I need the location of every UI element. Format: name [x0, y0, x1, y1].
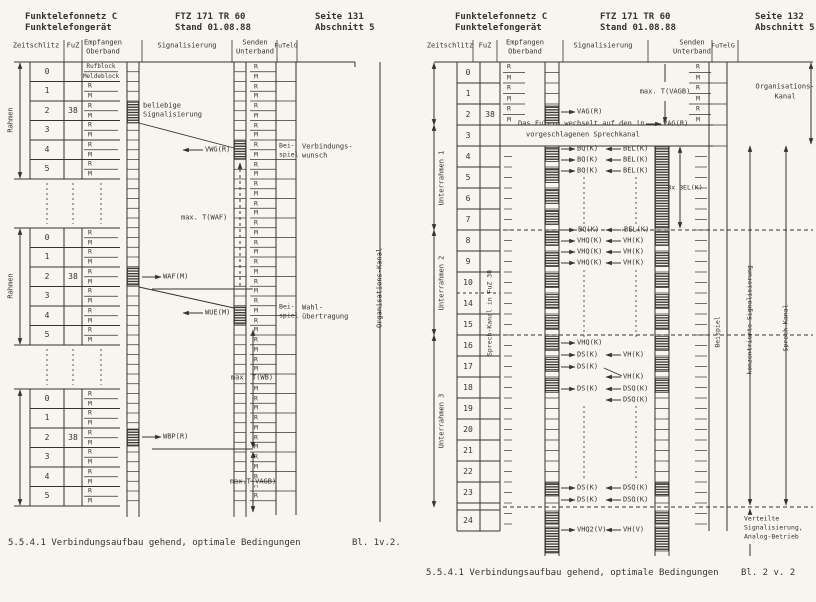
cell-rufblock-r: R [88, 288, 92, 295]
senden-cell-letter: M [254, 405, 258, 412]
timeslot-number: 4 [45, 146, 50, 154]
speech-channel-fuz-label: Sprech-Kanal in FuZ 38 [487, 269, 494, 357]
signal-label-in: VH(K) [623, 351, 644, 358]
cell-meldeblock-m: M [88, 151, 92, 158]
signal-label-in: VH(K) [623, 373, 644, 380]
column-header-senden: Unterband [673, 48, 711, 55]
timeslot-number: 5 [45, 331, 50, 339]
signal-label-out: DS(K) [577, 363, 598, 370]
cell-rufblock-r: R [88, 410, 92, 417]
cell-meldeblock: Meldeblock [83, 73, 119, 79]
timeslot-number: 0 [45, 234, 50, 242]
timing-diagram-blatt1: 0RufblockMeldeblock1RM2RM3RM4RM5RM38Rahm… [0, 0, 408, 602]
signal-label-in: BEL(K) [623, 226, 650, 233]
signal-label-in: BEL(K) [623, 167, 648, 174]
annotation-verteilte: Analog-Betrieb [744, 534, 799, 541]
signal-label-out: DS(K) [577, 385, 598, 392]
cell-rufblock-r: R [88, 141, 92, 148]
signal-label-out: VHQ2(V) [577, 526, 607, 533]
timeslot-number: 16 [463, 341, 473, 349]
note-channel-switch-signal: VAG(R) [663, 120, 688, 127]
senden-cell-letter: R [254, 103, 258, 110]
signal-label-in: VH(K) [623, 259, 644, 266]
underframe-label-1: Unterrahmen 1 [438, 151, 445, 206]
timeslot-number: 9 [466, 257, 471, 265]
timing-diagram-blatt2: 012345678910141516171819202122232438RRMM… [408, 0, 816, 602]
signal-label-out: VHQ(K) [577, 259, 602, 266]
timer-label-tvagb: max.T(VAGB) [229, 478, 277, 485]
column-header-empfangen: Empfangen [506, 39, 544, 46]
timeslot-number: 6 [466, 194, 471, 202]
signal-label-in: DSQ(K) [623, 496, 648, 503]
timeslot-number: 18 [463, 383, 473, 391]
column-header-fuz: FuZ [67, 42, 80, 49]
timeslot-number: 0 [466, 68, 471, 76]
empfangen-cell-letter: R [507, 64, 511, 71]
signal-label-in: BEL(K) [623, 145, 648, 152]
timeslot-number: 2 [45, 434, 50, 442]
senden-cell-letter: M [254, 190, 258, 197]
senden-cell-letter: R [254, 200, 258, 207]
senden-cell-letter: M [254, 93, 258, 100]
signal-label-out: BQ(K) [577, 167, 598, 174]
senden-cell-letter: R [696, 85, 700, 92]
column-header-empfangen: Oberband [86, 48, 120, 55]
timeslot-number: 3 [45, 292, 50, 300]
column-header-signalisierung: Signalisierung [573, 42, 632, 49]
column-header-empfangen: Empfangen [84, 39, 122, 46]
signal-label-out: BQ(K) [577, 145, 598, 152]
signal-label-out: VHQ(K) [577, 248, 602, 255]
cell-meldeblock-m: M [88, 420, 92, 427]
figure-caption: 5.5.4.1 Verbindungsaufbau gehend, optima… [8, 538, 301, 548]
senden-cell-letter: M [254, 424, 258, 431]
fuz-channel-number: 38 [68, 107, 78, 115]
empfangen-cell-letter: M [507, 74, 511, 81]
annotation-verteilte: Signalisierung, [744, 525, 803, 532]
senden-cell-letter: R [254, 142, 258, 149]
annotation-konzentrierte-signalisierung: konzentrierte Signalisierung [747, 264, 754, 376]
cell-meldeblock-m: M [88, 439, 92, 446]
timeslot-number: 0 [45, 68, 50, 76]
cell-rufblock-r: R [88, 307, 92, 314]
cell-rufblock-r: R [88, 429, 92, 436]
annotation-verteilte: Verteilte [744, 516, 779, 523]
senden-cell-letter: M [254, 73, 258, 80]
column-header-zeitschlitz: Zeitschlitz [427, 42, 473, 49]
page-seite-132: Funktelefonnetz CFunktelefongerät FTZ 17… [408, 0, 816, 602]
note-channel-switch: vorgeschlagenen Sprechkanal [526, 131, 640, 138]
senden-cell-letter: R [254, 259, 258, 266]
annotation-beliebige: Signalisierung [143, 111, 202, 118]
timeslot-number: 1 [45, 253, 50, 261]
cell-rufblock-r: R [88, 468, 92, 475]
annotation-wahl: Wahl- [302, 304, 323, 311]
timeslot-number: 5 [466, 173, 471, 181]
timeslot-number: 4 [45, 312, 50, 320]
annotation-verbind: Verbindungs- [302, 143, 353, 150]
senden-cell-letter: M [254, 249, 258, 256]
channel-label-sprechkanal: Sprech-Kanal [783, 304, 790, 353]
empfangen-cell-letter: R [507, 106, 511, 113]
cell-meldeblock-m: M [88, 317, 92, 324]
timeslot-number: 0 [45, 395, 50, 403]
annotation-8x-bel: 8x BEL(K) [666, 185, 703, 192]
cell-meldeblock-m: M [88, 239, 92, 246]
senden-cell-letter: M [254, 112, 258, 119]
frame-label-rahmen: Rahmen [7, 107, 14, 132]
fuz-channel-number: 38 [485, 110, 495, 118]
senden-cell-letter: M [254, 288, 258, 295]
senden-cell-letter: M [254, 210, 258, 217]
senden-cell-letter: R [254, 278, 258, 285]
timeslot-number: 8 [466, 236, 471, 244]
sheet-number: Bl. 1v.2. [352, 538, 401, 548]
timeslot-number: 7 [466, 215, 471, 223]
cell-meldeblock-m: M [88, 112, 92, 119]
senden-cell-letter: R [254, 181, 258, 188]
signal-label-in: DSQ(K) [623, 484, 648, 491]
cell-meldeblock-m: M [88, 459, 92, 466]
timeslot-number: 20 [463, 425, 473, 433]
signal-label-out: BQ(K) [577, 226, 600, 233]
timeslot-number: 19 [463, 404, 473, 412]
signal-label-in: VH(K) [623, 248, 644, 255]
column-header-senden: Senden [242, 39, 267, 46]
cell-rufblock-r: R [88, 83, 92, 90]
timer-label-twb: max. T(WB) [230, 374, 274, 381]
cell-rufblock-r: R [88, 161, 92, 168]
timeslot-number: 17 [463, 362, 473, 370]
senden-cell-letter: M [254, 307, 258, 314]
column-header-senden: Unterband [236, 48, 274, 55]
signal-label-in: DSQ(K) [623, 385, 648, 392]
channel-label-orgkanal: Organisations- [755, 83, 814, 90]
cell-meldeblock-m: M [88, 498, 92, 505]
cell-rufblock-r: R [88, 229, 92, 236]
channel-label-orgkanal: Organisations-Kanal [376, 247, 383, 329]
senden-cell-letter: R [254, 161, 258, 168]
cell-rufblock-r: R [88, 449, 92, 456]
empfangen-cell-letter: M [507, 95, 511, 102]
cell-rufblock-r: R [88, 249, 92, 256]
figure-caption: 5.5.4.1 Verbindungsaufbau gehend, optima… [426, 568, 719, 578]
cell-rufblock-r: R [88, 122, 92, 129]
cell-rufblock-r: R [88, 488, 92, 495]
signal-label-out: VHQ(K) [577, 237, 602, 244]
timeslot-number: 3 [466, 131, 471, 139]
senden-cell-letter: M [254, 385, 258, 392]
timeslot-number: 2 [45, 273, 50, 281]
note-channel-switch: Das FuTelG wechselt auf den in [518, 120, 644, 127]
timeslot-number: 15 [463, 320, 473, 328]
timeslot-number: 2 [466, 110, 471, 118]
signal-label-out: DS(K) [577, 496, 598, 503]
timeslot-number: 23 [463, 488, 473, 496]
timeslot-number: 22 [463, 467, 473, 475]
senden-cell-letter: M [254, 268, 258, 275]
senden-cell-letter: M [254, 346, 258, 353]
annotation-beispiel: spiel [279, 313, 299, 320]
timeslot-number: 3 [45, 126, 50, 134]
signal-label-out: BQ(K) [577, 156, 598, 163]
cell-meldeblock-m: M [88, 400, 92, 407]
senden-cell-letter: R [254, 220, 258, 227]
signal-label-wbp: WBP(R) [163, 433, 188, 440]
cell-rufblock-r: R [88, 268, 92, 275]
signal-label-in: VH(V) [623, 526, 644, 533]
signal-label-out: DS(K) [577, 351, 598, 358]
senden-cell-letter: R [254, 64, 258, 71]
senden-cell-letter: M [696, 74, 700, 81]
senden-cell-letter: M [254, 366, 258, 373]
signal-label-in: BEL(K) [623, 156, 648, 163]
senden-cell-letter: R [254, 337, 258, 344]
annotation-beispiel: Beispiel [715, 316, 722, 347]
fuz-channel-number: 38 [68, 434, 78, 442]
page-seite-131: Funktelefonnetz CFunktelefongerät FTZ 17… [0, 0, 408, 602]
underframe-label-3: Unterrahmen 3 [438, 394, 445, 449]
senden-cell-letter: R [254, 239, 258, 246]
cell-rufblock: Rufblock [87, 64, 116, 70]
senden-cell-letter: R [254, 122, 258, 129]
frame-label-rahmen: Rahmen [7, 273, 14, 298]
timeslot-number: 3 [45, 453, 50, 461]
timeslot-number: 21 [463, 446, 473, 454]
column-header-zeitschlitz: Zeitschlitz [13, 42, 59, 49]
cell-meldeblock-m: M [88, 93, 92, 100]
annotation-beispiel: spiel [279, 152, 299, 159]
timeslot-number: 1 [45, 87, 50, 95]
timer-label-tvagb: max. T(VAGB) [639, 88, 692, 95]
signal-label-out: VHQ(K) [577, 339, 602, 346]
senden-cell-letter: R [254, 395, 258, 402]
senden-cell-letter: R [254, 298, 258, 305]
cell-meldeblock-m: M [88, 478, 92, 485]
senden-cell-letter: R [696, 106, 700, 113]
column-header-empfangen: Oberband [508, 48, 542, 55]
senden-cell-letter: M [696, 116, 700, 123]
signal-label-in: DSQ(K) [623, 396, 648, 403]
timeslot-number: 5 [45, 492, 50, 500]
senden-cell-letter: M [254, 132, 258, 139]
signal-label-out: DS(K) [577, 484, 598, 491]
underframe-label-2: Unterrahmen 2 [438, 256, 445, 311]
senden-cell-letter: R [254, 317, 258, 324]
timeslot-number: 4 [45, 473, 50, 481]
annotation-verbind: wunsch [302, 152, 327, 159]
timeslot-number: 10 [463, 278, 473, 286]
timeslot-number: 1 [45, 414, 50, 422]
diagram-lines [0, 0, 408, 602]
sheet-number: Bl. 2 v. 2 [741, 568, 795, 578]
senden-cell-letter: R [254, 356, 258, 363]
empfangen-cell-letter: R [507, 85, 511, 92]
channel-label-orgkanal: Kanal [774, 93, 795, 100]
senden-cell-letter: M [254, 444, 258, 451]
senden-cell-letter: M [696, 95, 700, 102]
timeslot-number: 4 [466, 152, 471, 160]
annotation-beispiel: Bei- [279, 143, 295, 150]
column-header-futelg: FuTelG [274, 43, 297, 50]
senden-cell-letter: R [254, 415, 258, 422]
senden-cell-letter: M [254, 327, 258, 334]
annotation-beliebige: beliebige [143, 102, 181, 109]
senden-cell-letter: M [254, 171, 258, 178]
senden-cell-letter: R [254, 454, 258, 461]
cell-meldeblock-m: M [88, 171, 92, 178]
senden-cell-letter: R [254, 493, 258, 500]
signal-label-wue: WUE(M) [205, 309, 230, 316]
cell-meldeblock-m: M [88, 132, 92, 139]
empfangen-cell-letter: M [507, 116, 511, 123]
signal-label-in: VH(K) [623, 237, 644, 244]
timeslot-number: 14 [463, 299, 473, 307]
timeslot-number: 24 [463, 516, 473, 524]
fuz-channel-number: 38 [68, 273, 78, 281]
signal-label-waf: WAF(M) [163, 273, 188, 280]
cell-rufblock-r: R [88, 327, 92, 334]
cell-meldeblock-m: M [88, 259, 92, 266]
senden-cell-letter: M [254, 151, 258, 158]
column-header-futelg: FuTelG [711, 43, 734, 50]
annotation-wahl: übertragung [302, 313, 348, 320]
senden-cell-letter: R [254, 434, 258, 441]
column-header-senden: Senden [679, 39, 704, 46]
timeslot-number: 5 [45, 165, 50, 173]
cell-rufblock-r: R [88, 102, 92, 109]
scanned-document: Funktelefonnetz CFunktelefongerät FTZ 17… [0, 0, 816, 602]
senden-cell-letter: R [254, 83, 258, 90]
timeslot-number: 2 [45, 107, 50, 115]
cell-meldeblock-m: M [88, 298, 92, 305]
signal-label-out: VAG(R) [577, 108, 602, 115]
cell-meldeblock-m: M [88, 278, 92, 285]
senden-cell-letter: R [696, 64, 700, 71]
column-header-fuz: FuZ [479, 42, 492, 49]
cell-rufblock-r: R [88, 390, 92, 397]
senden-cell-letter: M [254, 463, 258, 470]
annotation-beispiel: Bei- [279, 304, 295, 311]
senden-cell-letter: M [254, 229, 258, 236]
column-header-signalisierung: Signalisierung [157, 42, 216, 49]
timeslot-number: 1 [466, 89, 471, 97]
signal-label-vwg: VWG(R) [205, 146, 230, 153]
timer-label-twaf: max. T(WAF) [181, 214, 227, 221]
cell-meldeblock-m: M [88, 337, 92, 344]
